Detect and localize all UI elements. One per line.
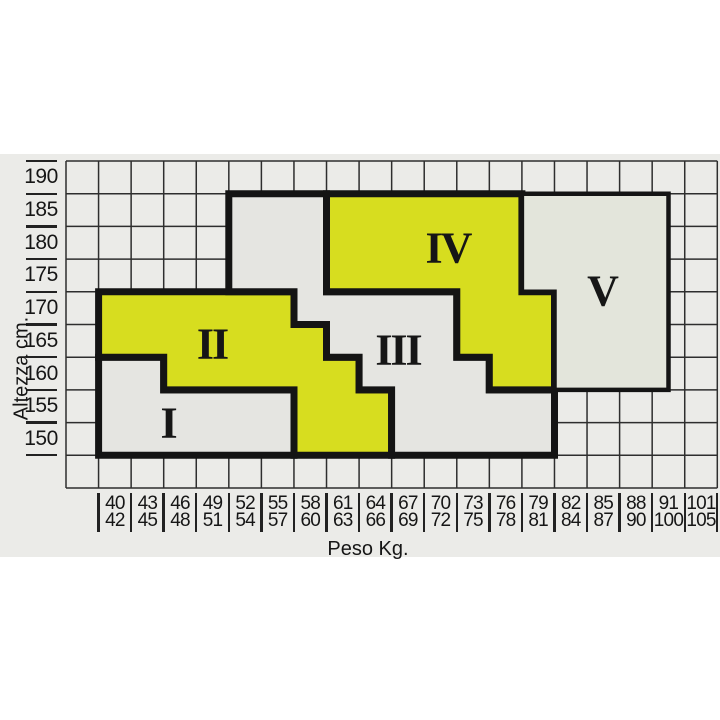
x-axis-separator: [488, 493, 490, 532]
x-axis-label: 5254: [229, 492, 262, 533]
x-axis-separator: [423, 493, 425, 532]
size-region-label-III: III: [375, 326, 421, 375]
x-axis-label: 4648: [164, 492, 197, 533]
x-axis-label: 4951: [196, 492, 229, 533]
y-axis-tick: [26, 454, 57, 456]
x-axis-label: 91100: [652, 492, 685, 533]
x-axis-separator: [390, 493, 392, 532]
x-axis-label: 8890: [620, 492, 653, 533]
y-axis-tick: [26, 258, 57, 260]
size-chart: IIIIIIIVV 190185180175170165160155150 40…: [0, 0, 720, 720]
size-region-label-II: II: [197, 320, 228, 369]
y-axis-label: 190: [21, 165, 61, 189]
x-axis-label: 101105: [685, 492, 718, 533]
x-axis-separator: [456, 493, 458, 532]
x-axis-separator: [130, 493, 132, 532]
x-axis-separator: [684, 493, 686, 532]
size-region-label-I: I: [160, 399, 176, 448]
chart-canvas: IIIIIIIVV: [0, 0, 720, 720]
size-region-label-IV: IV: [426, 224, 473, 273]
y-axis-tick: [26, 193, 57, 195]
x-axis-label: 6466: [359, 492, 392, 533]
x-axis-label: 6163: [327, 492, 360, 533]
x-axis-label: 5860: [294, 492, 327, 533]
x-axis-separator: [195, 493, 197, 532]
x-axis-separator: [228, 493, 230, 532]
x-axis-separator: [586, 493, 588, 532]
x-axis-separator: [651, 493, 653, 532]
x-axis-label: 7072: [424, 492, 457, 533]
x-axis-separator: [325, 493, 327, 532]
x-axis-separator: [97, 493, 99, 532]
y-axis-label: 175: [21, 263, 61, 287]
x-axis-label: 6769: [392, 492, 425, 533]
x-axis-label: 7678: [489, 492, 522, 533]
y-axis-title: Altezza cm.: [11, 289, 34, 449]
x-axis-label: 8284: [554, 492, 587, 533]
size-region-label-V: V: [587, 267, 619, 316]
x-axis-separator: [618, 493, 620, 532]
x-axis-title: Peso Kg.: [268, 538, 468, 561]
x-axis-separator: [553, 493, 555, 532]
x-axis-separator: [358, 493, 360, 532]
x-axis-separator: [716, 493, 718, 532]
y-axis-tick: [26, 160, 57, 162]
x-axis-label: 5557: [261, 492, 294, 533]
y-axis-label: 180: [21, 231, 61, 255]
x-axis-separator: [521, 493, 523, 532]
x-axis-separator: [162, 493, 164, 532]
x-axis-label: 7375: [457, 492, 490, 533]
y-axis-tick: [26, 225, 57, 227]
x-axis-separator: [293, 493, 295, 532]
y-axis-label: 185: [21, 198, 61, 222]
x-axis-label: 4345: [131, 492, 164, 533]
x-axis-label: 8587: [587, 492, 620, 533]
x-axis-label: 7981: [522, 492, 555, 533]
x-axis-separator: [260, 493, 262, 532]
x-axis-label: 4042: [99, 492, 132, 533]
